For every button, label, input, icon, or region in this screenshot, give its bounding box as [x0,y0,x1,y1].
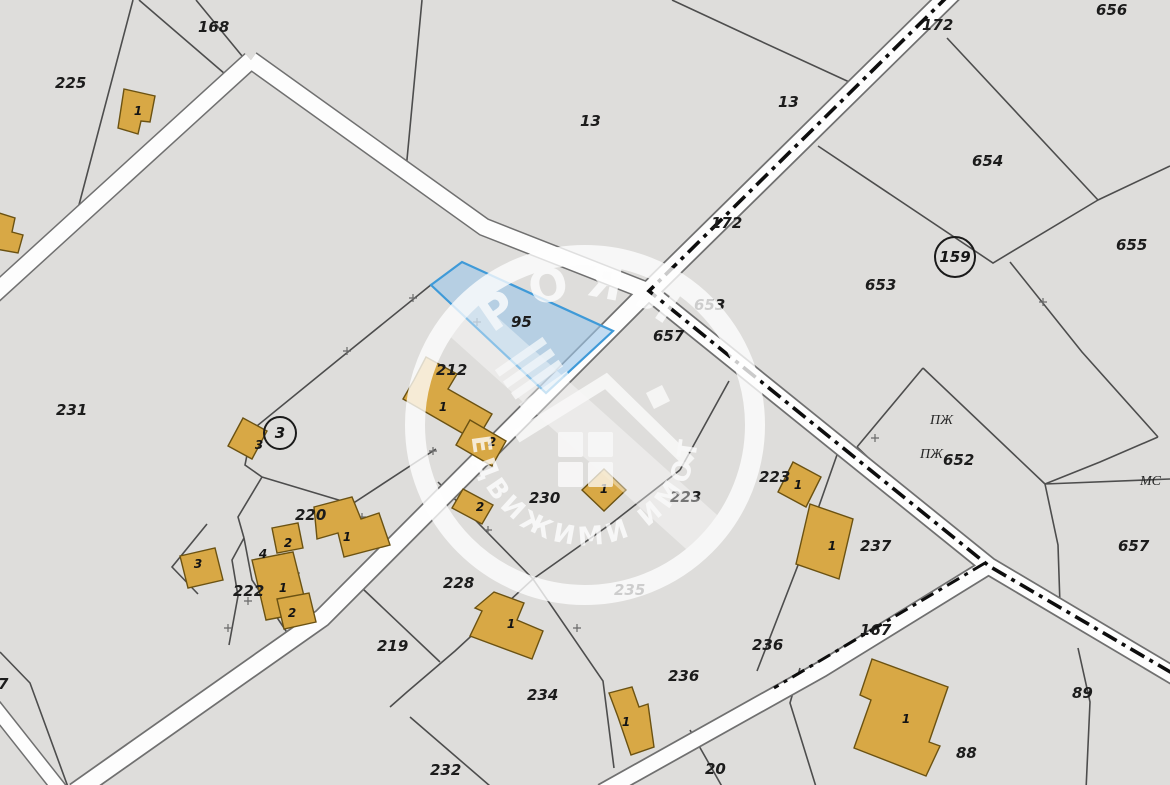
parcel-label: 223 [759,468,790,486]
building-label: 1 [828,539,836,553]
parcel-label: 13 [580,112,601,130]
parcel-label: 225 [55,74,86,92]
building-label: 1 [279,581,287,595]
parcel-label: 88 [956,744,977,762]
parcel-label: 167 [860,621,892,639]
parcel-label: 212 [436,361,467,379]
parcel-label: 220 [295,506,326,524]
map-canvas: 168 225 13 13 172 172 656 654 655 653 65… [0,0,1170,785]
parcel-label: 656 [1096,1,1127,19]
parcel-label: 236 [752,636,783,654]
building [277,593,316,629]
zone-label: ПЖ [919,447,944,462]
building-label: 3 [255,438,263,452]
parcel-label: 20 [705,760,726,778]
building-label: 4 [258,547,267,561]
zone-label: МС [1139,474,1162,489]
building-label: 1 [507,617,515,631]
building-label: 1 [439,400,447,414]
parcel-label: 13 [778,93,799,111]
parcel-label: 172 [922,16,953,34]
parcel-label: 655 [1116,236,1147,254]
parcel-label: 654 [972,152,1003,170]
cadastral-map: 168 225 13 13 172 172 656 654 655 653 65… [0,0,1170,785]
parcel-label: 231 [56,401,87,419]
parcel-label: 652 [943,451,974,469]
building-label: 2 [476,500,484,514]
building-label: 1 [343,530,351,544]
parcel-label: 89 [1072,684,1093,702]
parcel-label: 168 [198,18,229,36]
zone-label: ПЖ [929,413,954,428]
parcel-label: 232 [430,761,461,779]
building-label: 1 [134,104,142,118]
building-label: 3 [194,557,202,571]
parcel-label: 172 [711,214,742,232]
parcel-label: 7 [0,675,9,693]
parcel-label: 236 [668,667,699,685]
parcel-label: 234 [527,686,558,704]
parcel-label: 228 [443,574,474,592]
parcel-label: 657 [1118,537,1150,555]
parcel-label: 222 [233,582,264,600]
parcel-label: 219 [377,637,408,655]
control-point-label: 3 [275,424,285,442]
parcel-label: 653 [865,276,896,294]
control-point-label: 159 [939,248,970,266]
parcel-label: 230 [529,489,560,507]
building-label: 2 [288,606,296,620]
building-label: 1 [902,712,910,726]
parcel-label: 237 [860,537,892,555]
building-label: 1 [794,478,802,492]
building-label: 1 [622,715,630,729]
building-label: 2 [284,536,292,550]
